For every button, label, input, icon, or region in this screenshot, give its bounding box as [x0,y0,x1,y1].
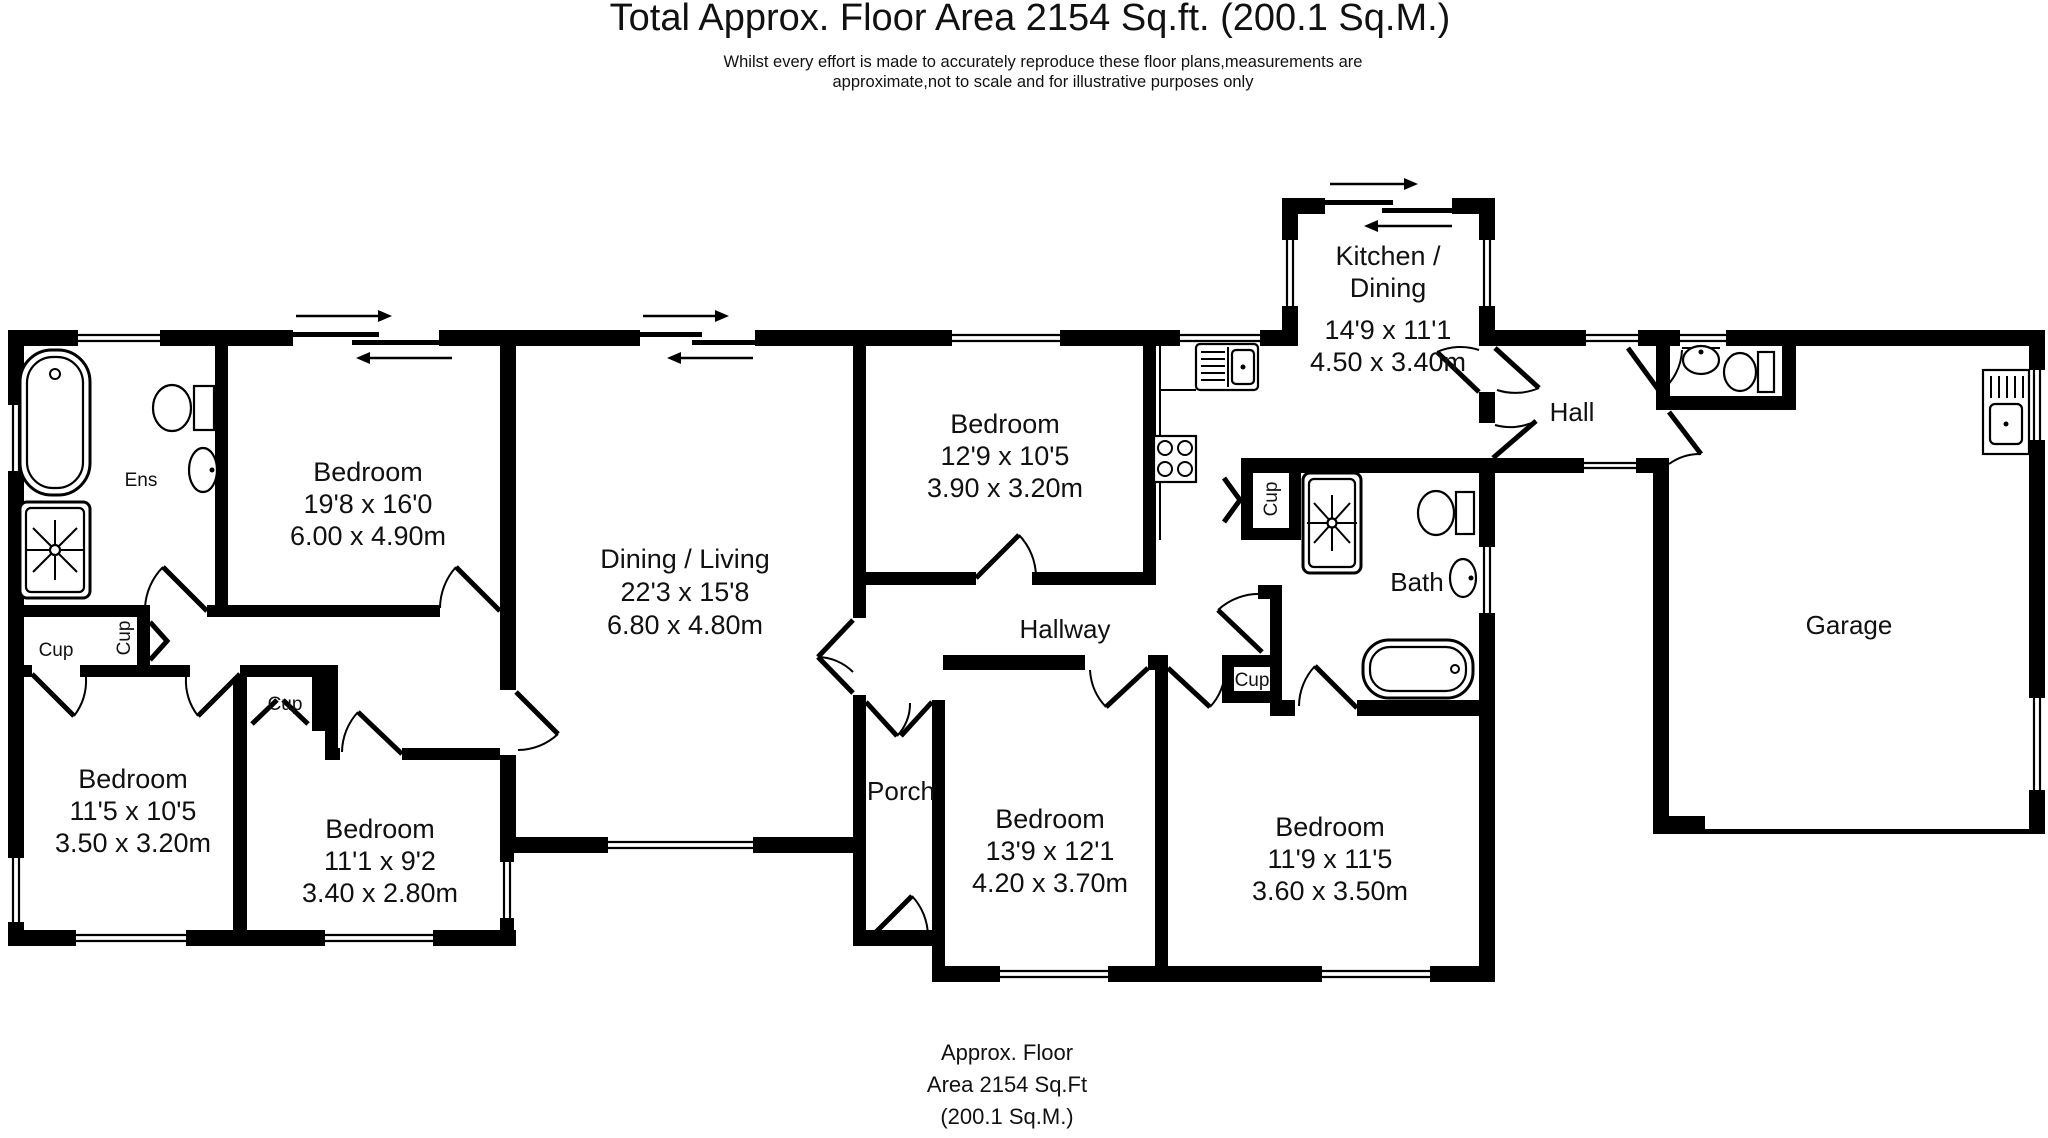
wall [223,605,440,617]
wall [137,605,150,665]
wall [1155,655,1168,982]
room-dims-imperial: 14'9 x 11'1 [1325,315,1452,345]
door [145,567,207,611]
disclaimer-line2: approximate,not to scale and for illustr… [833,73,1255,91]
door [1669,412,1701,464]
sink-icon [1682,346,1720,374]
wall [233,677,247,930]
label-bath: Bath [1390,567,1444,597]
window [325,930,433,946]
garage-door-line [1705,829,2029,834]
wall [932,700,945,966]
wall [853,346,866,618]
wall [500,346,516,690]
room-name: Bedroom [313,457,423,487]
window [1479,547,1495,613]
label-ensuite: Ens [125,470,158,491]
window [500,862,514,918]
door-bifold [1224,478,1240,522]
door [1493,421,1536,458]
window [1584,458,1636,473]
room-label-bedroom-6: Bedroom 11'9 x 11'5 3.60 x 3.50m [1252,812,1408,906]
room-dims-imperial: 19'8 x 16'0 [304,489,433,519]
disclaimer-line1: Whilst every effort is made to accuratel… [724,53,1363,71]
room-name: Kitchen / [1335,241,1441,271]
wall [1653,470,1669,820]
bathtub-icon [20,350,90,495]
room-dims-metric: 3.90 x 3.20m [927,473,1083,503]
wall [1241,458,1479,473]
room-name: Bedroom [325,814,435,844]
room-label-bedroom-4: Bedroom 11'1 x 9'2 3.40 x 2.80m [302,814,458,908]
window [952,330,1060,346]
door [186,674,240,716]
label-cupboard: Cup [1261,482,1282,517]
room-label-bedroom-5: Bedroom 13'9 x 12'1 4.20 x 3.70m [972,804,1128,898]
wall [8,665,32,677]
window [608,837,753,853]
door [1218,594,1262,652]
wall [1493,330,2045,346]
shower-icon [20,502,90,598]
wall [1782,346,1796,410]
room-dims-imperial: 11'5 x 10'5 [70,796,197,826]
window [1282,240,1298,306]
room-dims-metric: 3.40 x 2.80m [302,878,458,908]
footer-line2: Area 2154 Sq.Ft [927,1072,1087,1097]
door [440,567,500,611]
wall [402,748,500,760]
room-dims-imperial: 22'3 x 15'8 [621,577,750,607]
room-name: Bedroom [78,764,188,794]
label-garage: Garage [1806,610,1893,640]
wall [1357,700,1479,716]
window [8,858,24,922]
room-name: Bedroom [1275,812,1385,842]
wall [1479,392,1495,423]
room-label-bedroom-2: Bedroom 12'9 x 10'5 3.90 x 3.20m [927,409,1083,503]
toilet-icon [1724,352,1774,392]
garage-sink-icon [1983,370,2029,454]
wall [853,930,945,946]
door [32,674,86,716]
wall [8,605,143,617]
footer-line1: Approx. Floor [941,1040,1073,1065]
sliding-door [640,310,755,364]
wall [1032,572,1156,585]
wall [1270,585,1282,703]
label-hallway: Hallway [1019,614,1110,644]
door [516,692,558,750]
door [976,535,1036,578]
wall [1479,613,1495,982]
room-name: Dining / Living [600,544,770,574]
window [1479,240,1495,306]
room-dims-imperial: 13'9 x 12'1 [986,836,1115,866]
room-label-dining-living: Dining / Living 22'3 x 15'8 6.80 x 4.80m [600,544,770,640]
wall [80,665,190,677]
door [1299,666,1357,708]
room-dims-imperial: 12'9 x 10'5 [941,441,1070,471]
label-cupboard: Cup [39,640,74,661]
toilet-icon [1418,491,1474,535]
room-dims-imperial: 11'1 x 9'2 [324,846,436,876]
footer-line3: (200.1 Sq.M.) [940,1104,1073,1129]
window [2029,370,2045,440]
room-dims-metric: 6.00 x 4.90m [290,521,446,551]
wall [1241,458,1253,540]
room-name: Bedroom [995,804,1105,834]
door [1168,668,1225,707]
wall [1289,458,1301,540]
sliding-door [293,310,452,364]
porch-door-sill [870,939,924,943]
sliding-door [1325,178,1452,232]
room-dims-metric: 3.60 x 3.50m [1252,876,1408,906]
wall [1653,458,1669,470]
hob-icon [1154,436,1196,482]
wall [853,695,866,946]
shower-icon [1303,473,1361,573]
window [1586,330,1638,346]
room-label-bedroom-main: Bedroom 19'8 x 16'0 6.00 x 4.90m [290,457,446,551]
label-cupboard: Cup [1235,670,1270,691]
window [78,330,160,346]
wall [1258,585,1271,599]
window [1000,966,1108,982]
wall [312,665,325,731]
door [818,620,853,693]
door [1090,668,1148,707]
room-dims-metric: 4.20 x 3.70m [972,868,1128,898]
sink-icon [1450,559,1476,597]
wall [1656,396,1796,410]
room-dims-metric: 4.50 x 3.40m [1310,347,1466,377]
room-label-kitchen-dining: Kitchen / Dining 14'9 x 11'1 4.50 x 3.40… [1310,241,1466,377]
kitchen-sink-icon [1196,344,1258,390]
wall [325,665,338,760]
floorplan-page: Total Approx. Floor Area 2154 Sq.ft. (20… [0,0,2048,1138]
window [76,930,186,946]
room-label-bedroom-3: Bedroom 11'5 x 10'5 3.50 x 3.20m [55,764,211,858]
wall [866,572,976,585]
window [1680,330,1726,346]
window [2029,698,2045,790]
door [1628,348,1682,392]
room-dims-metric: 3.50 x 3.20m [55,828,211,858]
window [1322,966,1430,982]
wall [500,755,516,837]
wall [325,748,340,760]
label-porch: Porch [867,776,935,806]
room-name: Dining [1350,273,1427,303]
floorplan-drawing: Total Approx. Floor Area 2154 Sq.ft. (20… [0,0,2048,1138]
wall [207,605,223,617]
room-name: Bedroom [950,409,1060,439]
label-cupboard: Cup [268,694,303,715]
page-title: Total Approx. Floor Area 2154 Sq.ft. (20… [610,0,1451,39]
wall [943,655,1085,670]
label-hall: Hall [1550,397,1595,427]
room-dims-metric: 6.80 x 4.80m [607,610,763,640]
room-dims-imperial: 11'9 x 11'5 [1268,844,1393,874]
door-bifold [150,622,167,660]
wall [1479,458,1495,547]
label-cupboard: Cup [114,621,135,656]
toilet-icon [153,385,214,431]
bathtub-icon [1363,640,1473,698]
door [342,712,402,754]
sink-icon [189,448,217,492]
door [866,702,932,736]
footer-area-note: Approx. Floor Area 2154 Sq.Ft (200.1 Sq.… [927,1040,1087,1129]
